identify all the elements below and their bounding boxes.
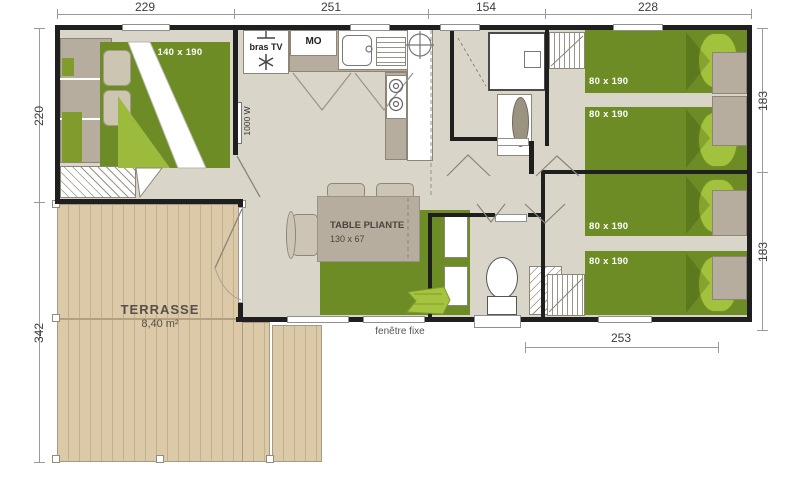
bedroom2-wardrobe xyxy=(549,32,585,69)
table-name-label: TABLE PLIANTE xyxy=(330,220,404,231)
door-leaf-bathroom xyxy=(497,138,529,146)
door-opening-bedroom1 xyxy=(233,155,238,199)
sink-basin xyxy=(342,35,372,66)
wall-bathroom-bottom xyxy=(450,137,497,141)
dim-top-4: 228 xyxy=(618,0,678,14)
toilet-tank xyxy=(487,296,517,315)
master-bed-size-label: 140 x 190 xyxy=(150,47,210,58)
twin-bed-size-label-1: 80 x 190 xyxy=(589,76,628,87)
terrace-area-label: 8,40 m² xyxy=(105,318,215,330)
wall-bedrooms-divider xyxy=(545,170,752,174)
dim-right-2: 183 xyxy=(756,222,770,282)
bedroom3-nightstand xyxy=(712,190,747,236)
window-bedroom3 xyxy=(598,316,652,323)
twin-bed-size-label-4: 80 x 190 xyxy=(589,256,628,267)
terrace-post xyxy=(266,455,274,463)
fridge-tv-unit xyxy=(243,30,289,74)
terrace-deck-lower xyxy=(243,322,270,462)
window-bathroom xyxy=(440,24,480,31)
dim-line-bottom xyxy=(525,347,718,348)
bedroom2-nightstand xyxy=(712,96,747,146)
sofa-storage-box xyxy=(444,216,468,258)
bedroom3-wardrobe xyxy=(547,274,585,316)
wall-wc-left xyxy=(428,213,432,317)
tv-bracket-label: bras TV xyxy=(243,42,289,52)
wall-bedroom1-right xyxy=(233,25,238,158)
dim-left-2: 342 xyxy=(32,303,46,363)
master-bed-pillow xyxy=(103,90,131,126)
table-size-label: 130 x 67 xyxy=(330,234,365,244)
sofa-storage-box xyxy=(444,266,468,306)
shower-drain xyxy=(524,51,541,68)
door-opening-entrance xyxy=(238,207,243,303)
dim-top-3: 154 xyxy=(456,0,516,14)
window-bedroom2 xyxy=(613,24,663,31)
dining-chair-back xyxy=(286,211,296,259)
kitchen-tall-cabinet xyxy=(407,28,433,161)
wall-bathroom-nook xyxy=(529,141,534,174)
wall-bedroom2-left xyxy=(545,25,549,146)
master-wardrobe-green-item xyxy=(62,58,74,76)
terrace-post xyxy=(52,455,60,463)
hob-unit xyxy=(386,75,407,119)
bedroom2-nightstand xyxy=(712,52,747,94)
wall-bedroom3-left xyxy=(541,170,545,317)
dim-top-1: 229 xyxy=(115,0,175,14)
door-leaf-wc xyxy=(495,214,527,222)
window-bedroom1 xyxy=(122,24,170,31)
master-bed-pillow xyxy=(103,50,131,86)
terrace-deck xyxy=(57,204,243,462)
wall-bathroom-left xyxy=(450,25,454,141)
wall-left xyxy=(55,25,60,204)
dim-top-2: 251 xyxy=(301,0,361,14)
toilet-bowl xyxy=(486,257,518,299)
window-living-1 xyxy=(287,316,349,323)
window-kitchen xyxy=(350,24,390,31)
dim-left-1: 220 xyxy=(32,86,46,146)
microwave-label: MO xyxy=(290,36,337,47)
window-living-fixed xyxy=(363,316,425,323)
twin-bed-size-label-2: 80 x 190 xyxy=(589,109,628,120)
heater-power-label: 1000 W xyxy=(242,93,252,149)
wall-bedroom1-bottom xyxy=(55,199,243,204)
dim-bottom-1: 253 xyxy=(591,331,651,345)
dim-line-top xyxy=(57,14,751,15)
terrace-deck-extension xyxy=(272,325,322,462)
master-shelf-unit xyxy=(60,166,136,198)
dim-right-1: 183 xyxy=(756,71,770,131)
wc-step xyxy=(474,315,521,328)
sink-drainer xyxy=(376,37,406,66)
fixed-window-label: fenêtre fixe xyxy=(350,326,450,337)
bedroom3-nightstand xyxy=(712,256,747,300)
twin-bed-size-label-3: 80 x 190 xyxy=(589,221,628,232)
terrace-post xyxy=(156,455,164,463)
floor-plan: 229 251 154 228 220 342 183 183 253 140 … xyxy=(0,0,796,480)
master-wardrobe-green-item xyxy=(62,112,82,162)
terrace-post xyxy=(52,314,60,322)
terrace-name-label: TERRASSE xyxy=(105,302,215,317)
